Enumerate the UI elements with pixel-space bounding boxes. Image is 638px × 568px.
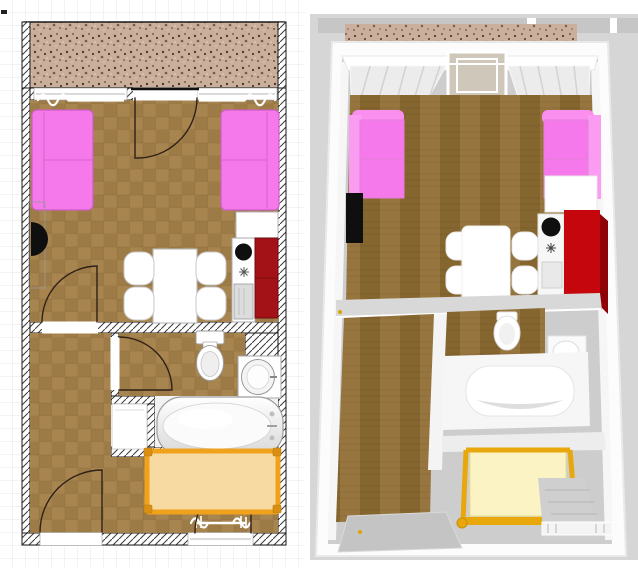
entry-door-3d[interactable]	[338, 512, 462, 552]
chair-3d[interactable]	[512, 232, 538, 260]
toilet-3d[interactable]	[494, 312, 520, 350]
bed-post	[273, 448, 281, 456]
white-cabinet[interactable]	[236, 212, 278, 238]
red-cabinet-side	[600, 214, 608, 314]
window-sill-3d	[542, 522, 612, 535]
bed-mattress	[147, 451, 278, 512]
bed-post	[273, 505, 281, 513]
wall-bath-stub	[245, 333, 278, 356]
bathtub[interactable]	[157, 397, 283, 456]
sofa-left[interactable]	[32, 110, 93, 210]
wall-closet-top	[111, 396, 155, 404]
toilet-bowl-inner	[201, 352, 219, 377]
entry-door-panel	[338, 512, 462, 552]
chair[interactable]	[196, 252, 226, 285]
toilet-bowl-inner-3d	[499, 323, 515, 345]
view-3d-canvas[interactable]	[305, 0, 638, 568]
kitchen-counter[interactable]	[232, 238, 255, 322]
sofa-left-3d[interactable]	[349, 110, 404, 199]
wall-left	[22, 88, 30, 545]
floor-plan-screenshot	[0, 0, 638, 568]
balcony-floor	[24, 22, 284, 88]
bed-knob-3d	[457, 518, 467, 528]
balcony-door-3d[interactable]	[448, 52, 506, 98]
bathroom-floor	[119, 333, 245, 396]
chair-3d[interactable]	[512, 266, 538, 294]
bathroom-door-opening[interactable]	[111, 337, 120, 390]
bedroom-floor	[30, 333, 111, 533]
cabinet-top	[236, 212, 278, 238]
kitchen-sink[interactable]	[235, 244, 252, 261]
bed[interactable]	[144, 448, 281, 513]
bathtub-3d[interactable]	[442, 352, 590, 430]
living-door-opening[interactable]	[42, 322, 98, 334]
closet-floor	[112, 404, 147, 449]
stove-burner-icon[interactable]	[239, 267, 249, 277]
washbasin[interactable]	[238, 356, 281, 398]
chair[interactable]	[124, 252, 154, 285]
table-top	[153, 249, 197, 323]
door-handle-gold	[338, 310, 342, 314]
chair[interactable]	[196, 287, 226, 320]
sink-3d[interactable]	[542, 218, 561, 237]
bed-post	[144, 505, 152, 513]
top-bar-gap	[610, 18, 617, 33]
tub-tap	[270, 436, 275, 441]
chair[interactable]	[124, 287, 154, 320]
door-handle-gold	[358, 530, 362, 534]
compass-mark	[1, 10, 7, 14]
closet[interactable]	[112, 404, 147, 449]
tub-highlight	[177, 409, 233, 429]
balcony-rail-right	[278, 22, 286, 88]
fridge-3d[interactable]	[545, 176, 597, 212]
entry-door-opening[interactable]	[40, 533, 102, 546]
stove-icon-3d[interactable]	[546, 243, 556, 253]
sofa-right[interactable]	[221, 110, 279, 210]
basin-inner	[247, 365, 269, 389]
dishwasher-3d[interactable]	[542, 262, 562, 288]
toilet[interactable]	[196, 331, 224, 381]
bed-post	[144, 448, 152, 456]
tub-tap	[270, 412, 275, 417]
bedroom-floor-3d	[336, 314, 434, 522]
red-cabinet[interactable]	[255, 238, 278, 318]
tv-3d[interactable]	[346, 193, 363, 243]
balcony-rail-left	[22, 22, 30, 88]
dining-table[interactable]	[153, 249, 197, 323]
table-3d[interactable]	[462, 226, 510, 304]
plan-2d-canvas[interactable]	[0, 0, 305, 568]
